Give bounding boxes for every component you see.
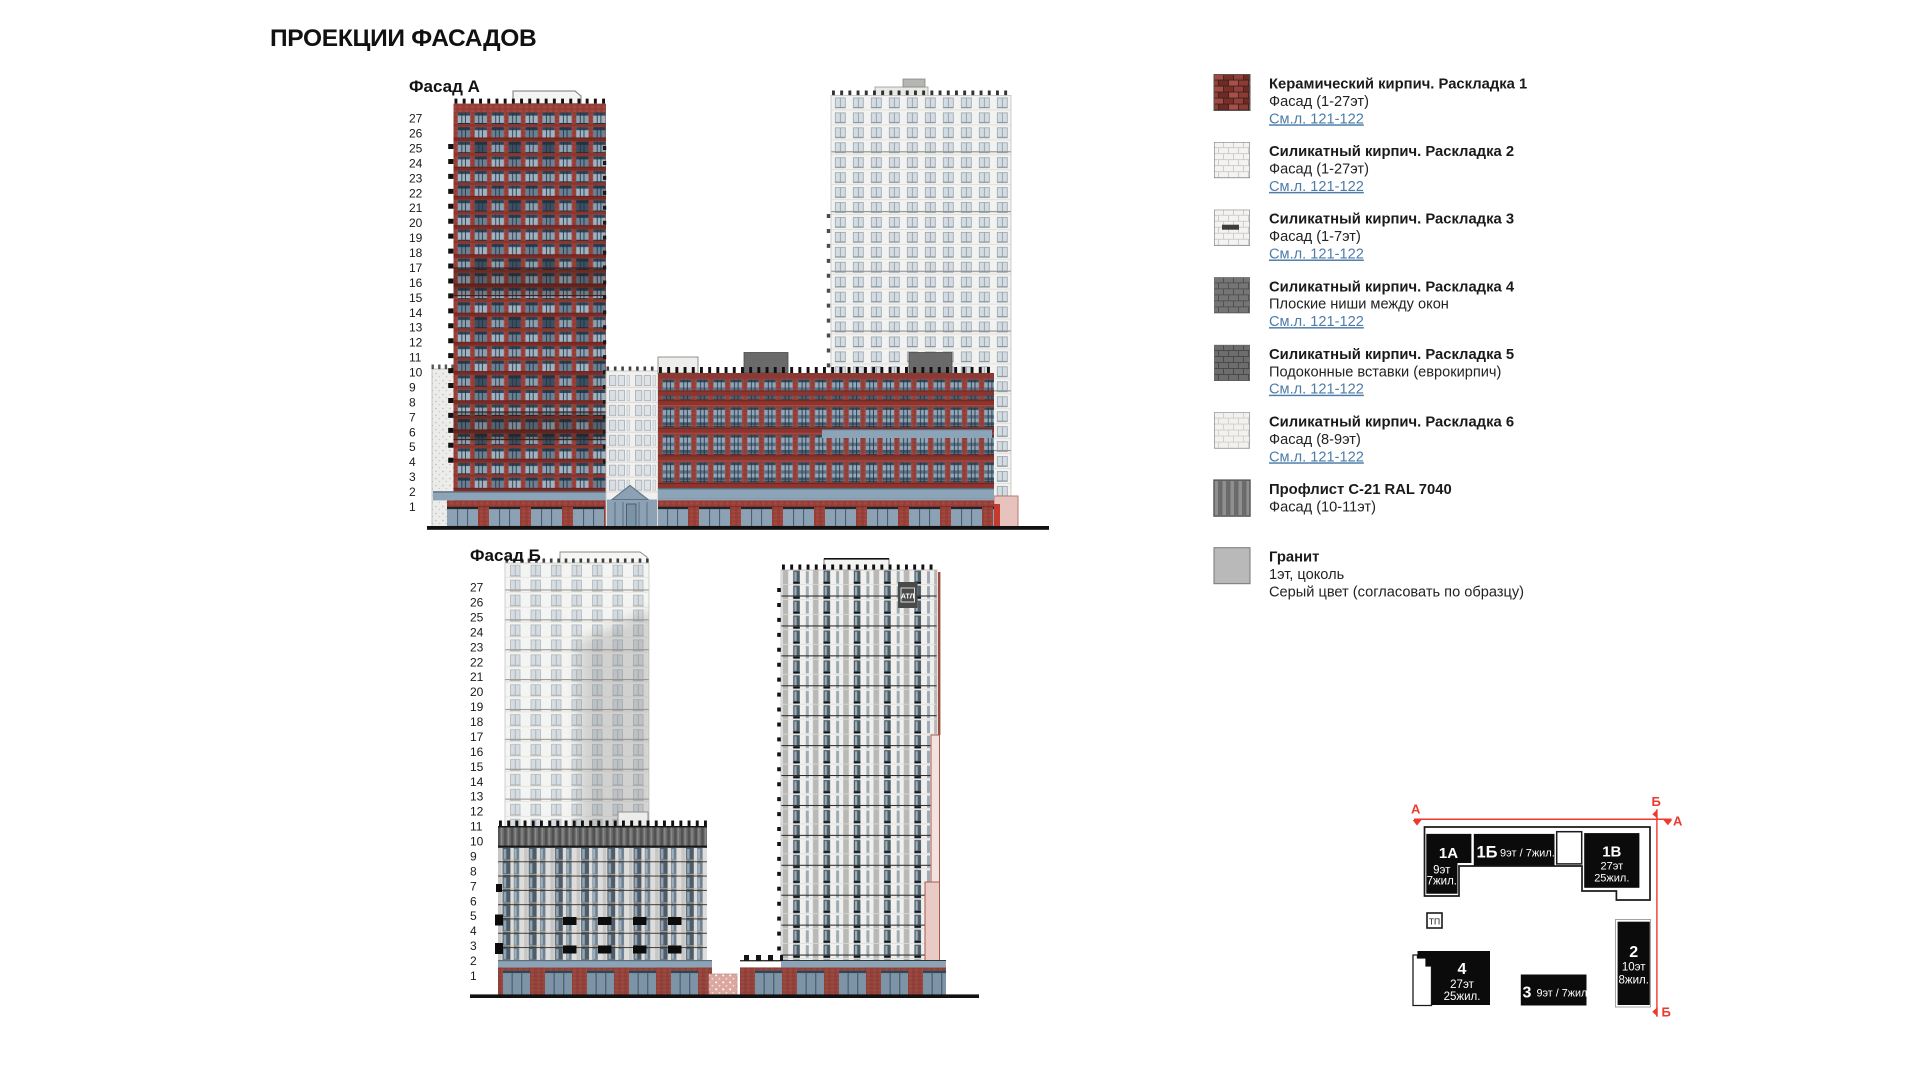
svg-text:1: 1	[409, 500, 416, 514]
svg-text:Фасад (1-7эт): Фасад (1-7эт)	[1269, 229, 1361, 245]
svg-text:Подоконные вставки (еврокирпич: Подоконные вставки (еврокирпич)	[1269, 364, 1501, 380]
svg-text:3: 3	[1523, 985, 1532, 1002]
svg-text:2: 2	[470, 954, 477, 968]
svg-text:18: 18	[470, 715, 484, 729]
svg-text:Фасад А: Фасад А	[409, 77, 480, 96]
svg-text:24: 24	[470, 625, 484, 639]
svg-text:12: 12	[470, 805, 484, 819]
svg-text:Фасад (8-9эт): Фасад (8-9эт)	[1269, 432, 1361, 448]
svg-text:3: 3	[470, 939, 477, 953]
svg-text:27эт: 27эт	[1600, 860, 1623, 872]
svg-text:Силикатный кирпич. Раскладка 6: Силикатный кирпич. Раскладка 6	[1269, 415, 1514, 431]
svg-text:Силикатный кирпич. Раскладка 3: Силикатный кирпич. Раскладка 3	[1269, 212, 1514, 228]
svg-text:25жил.: 25жил.	[1444, 991, 1481, 1003]
svg-text:4: 4	[1458, 961, 1467, 978]
svg-text:10: 10	[470, 835, 484, 849]
svg-text:Силикатный кирпич. Раскладка 4: Силикатный кирпич. Раскладка 4	[1269, 279, 1515, 295]
svg-text:15: 15	[470, 760, 484, 774]
svg-text:Б: Б	[1652, 794, 1661, 809]
svg-text:Силикатный кирпич. Раскладка 2: Силикатный кирпич. Раскладка 2	[1269, 144, 1514, 160]
svg-text:1В: 1В	[1602, 844, 1621, 861]
svg-text:13: 13	[409, 321, 423, 335]
svg-text:Гранит: Гранит	[1269, 550, 1319, 566]
svg-text:26: 26	[470, 596, 484, 610]
svg-text:11: 11	[470, 820, 483, 834]
svg-text:9: 9	[409, 381, 416, 395]
svg-text:23: 23	[470, 640, 484, 654]
svg-text:10: 10	[409, 366, 423, 380]
svg-text:23: 23	[409, 171, 423, 185]
svg-text:5: 5	[409, 440, 416, 454]
svg-text:2: 2	[1629, 944, 1638, 961]
svg-text:ТП: ТП	[1429, 917, 1440, 927]
svg-text:15: 15	[409, 291, 423, 305]
svg-text:См.л. 121-122: См.л. 121-122	[1269, 382, 1364, 398]
svg-text:7: 7	[470, 879, 477, 893]
svg-text:А: А	[1411, 801, 1421, 816]
svg-text:18: 18	[409, 246, 423, 260]
svg-text:10эт: 10эт	[1622, 962, 1646, 974]
svg-text:См.л. 121-122: См.л. 121-122	[1269, 247, 1364, 263]
svg-text:9: 9	[470, 850, 477, 864]
svg-text:См.л. 121-122: См.л. 121-122	[1269, 449, 1364, 465]
svg-text:20: 20	[470, 685, 484, 699]
svg-text:См.л. 121-122: См.л. 121-122	[1269, 314, 1364, 330]
svg-text:Фасад (1-27эт): Фасад (1-27эт)	[1269, 94, 1369, 110]
svg-text:4: 4	[470, 924, 477, 938]
svg-text:4: 4	[409, 455, 416, 469]
svg-text:27эт: 27эт	[1450, 979, 1474, 991]
svg-text:27: 27	[470, 581, 484, 595]
svg-text:20: 20	[409, 216, 423, 230]
svg-text:6: 6	[470, 894, 477, 908]
svg-text:9эт / 7жил: 9эт / 7жил	[1537, 987, 1588, 999]
svg-text:См.л. 121-122: См.л. 121-122	[1269, 179, 1364, 195]
svg-text:19: 19	[409, 231, 423, 245]
svg-text:1эт, цоколь: 1эт, цоколь	[1269, 567, 1344, 583]
svg-text:А: А	[1673, 813, 1683, 828]
svg-text:9эт / 7жил.: 9эт / 7жил.	[1500, 848, 1555, 860]
svg-text:17: 17	[470, 730, 484, 744]
svg-text:11: 11	[409, 351, 422, 365]
svg-text:14: 14	[409, 306, 423, 320]
svg-text:Фасад (1-27эт): Фасад (1-27эт)	[1269, 162, 1369, 178]
svg-text:21: 21	[409, 201, 423, 215]
svg-text:Профлист С-21 RAL 7040: Профлист С-21 RAL 7040	[1269, 482, 1452, 498]
svg-text:Керамический кирпич. Раскладка: Керамический кирпич. Раскладка 1	[1269, 77, 1527, 93]
svg-text:1А: 1А	[1439, 845, 1458, 862]
svg-text:6: 6	[409, 425, 416, 439]
svg-text:19: 19	[470, 700, 484, 714]
svg-text:16: 16	[409, 276, 423, 290]
svg-text:Серый цвет (согласовать по обр: Серый цвет (согласовать по образцу)	[1269, 585, 1524, 601]
svg-text:8: 8	[470, 864, 477, 878]
svg-text:5: 5	[470, 909, 477, 923]
svg-text:7жил.: 7жил.	[1427, 876, 1457, 888]
svg-text:Фасад (10-11эт): Фасад (10-11эт)	[1269, 500, 1376, 516]
svg-text:25жил.: 25жил.	[1594, 873, 1629, 885]
svg-text:24: 24	[409, 156, 423, 170]
svg-text:22: 22	[470, 655, 484, 669]
svg-text:7: 7	[409, 410, 416, 424]
svg-text:Плоские ниши между окон: Плоские ниши между окон	[1269, 297, 1449, 313]
svg-text:3: 3	[409, 470, 416, 484]
svg-text:АТЛ: АТЛ	[901, 594, 915, 601]
svg-text:25: 25	[409, 141, 423, 155]
svg-text:ПРОЕКЦИИ ФАСАДОВ: ПРОЕКЦИИ ФАСАДОВ	[270, 25, 536, 52]
svg-text:22: 22	[409, 186, 423, 200]
svg-text:12: 12	[409, 336, 423, 350]
svg-text:8: 8	[409, 395, 416, 409]
svg-text:13: 13	[470, 790, 484, 804]
svg-text:17: 17	[409, 261, 423, 275]
svg-text:2: 2	[409, 485, 416, 499]
svg-text:1Б: 1Б	[1477, 844, 1498, 862]
svg-text:14: 14	[470, 775, 484, 789]
svg-text:26: 26	[409, 127, 423, 141]
svg-text:25: 25	[470, 610, 484, 624]
svg-text:8жил.: 8жил.	[1618, 975, 1648, 987]
svg-text:16: 16	[470, 745, 484, 759]
svg-text:См.л. 121-122: См.л. 121-122	[1269, 111, 1364, 127]
svg-text:Б: Б	[1662, 1004, 1671, 1019]
svg-text:Силикатный кирпич. Раскладка 5: Силикатный кирпич. Раскладка 5	[1269, 347, 1514, 363]
svg-text:1: 1	[470, 969, 477, 983]
svg-text:21: 21	[470, 670, 484, 684]
svg-text:27: 27	[409, 112, 423, 126]
